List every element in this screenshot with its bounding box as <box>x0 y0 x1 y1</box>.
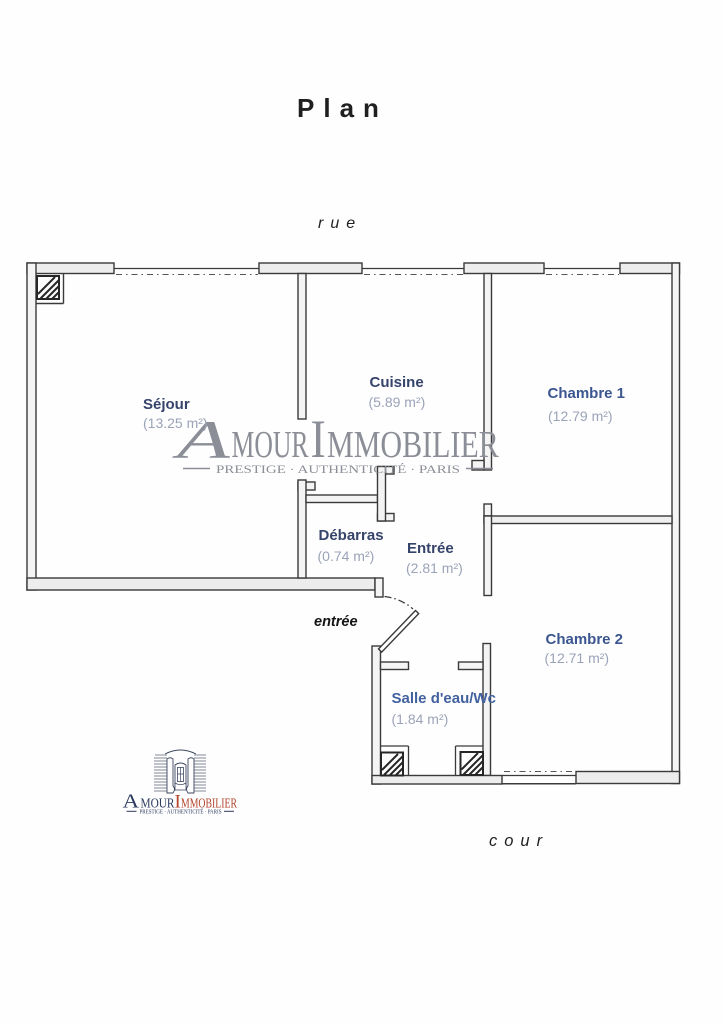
svg-text:I: I <box>311 409 326 469</box>
svg-text:PRESTIGE · AUTHENTICITÉ · PARI: PRESTIGE · AUTHENTICITÉ · PARIS <box>140 808 222 816</box>
svg-text:MMOBILIER: MMOBILIER <box>327 424 499 466</box>
svg-text:MOUR: MOUR <box>232 424 309 466</box>
svg-text:A: A <box>123 790 140 812</box>
svg-text:PRESTIGE · AUTHENTICITÉ · PARI: PRESTIGE · AUTHENTICITÉ · PARIS <box>216 462 460 476</box>
